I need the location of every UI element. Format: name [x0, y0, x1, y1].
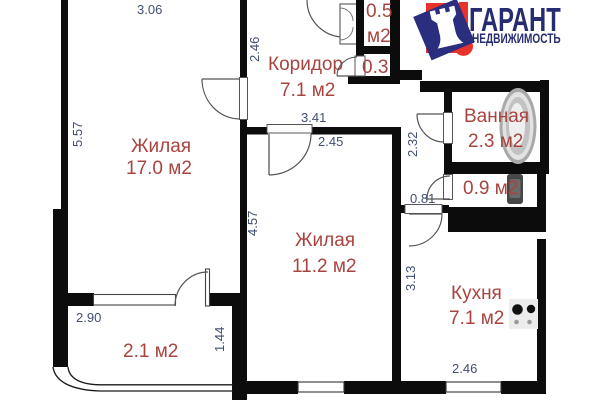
svg-text:0.5: 0.5 [366, 1, 392, 22]
svg-text:4.57: 4.57 [245, 211, 260, 236]
svg-text:7.1 м2: 7.1 м2 [280, 80, 335, 101]
svg-text:7.1 м2: 7.1 м2 [449, 308, 504, 329]
svg-text:2.32: 2.32 [405, 132, 420, 157]
svg-text:2.90: 2.90 [76, 310, 101, 325]
svg-text:2.46: 2.46 [247, 37, 262, 62]
svg-text:НЕДВИЖИМОСТЬ: НЕДВИЖИМОСТЬ [472, 30, 561, 46]
svg-text:0.9 м2: 0.9 м2 [463, 178, 518, 199]
svg-text:17.0 м2: 17.0 м2 [126, 158, 192, 179]
svg-text:2.45: 2.45 [318, 134, 343, 149]
svg-text:0.81: 0.81 [410, 191, 435, 206]
svg-text:0.3: 0.3 [362, 57, 388, 78]
svg-text:5.57: 5.57 [70, 122, 85, 147]
svg-text:3.13: 3.13 [403, 266, 418, 291]
svg-text:Жилая: Жилая [131, 136, 191, 157]
svg-text:3.06: 3.06 [137, 2, 162, 17]
svg-text:Кухня: Кухня [451, 283, 502, 304]
svg-text:м2: м2 [367, 26, 391, 47]
svg-text:1.44: 1.44 [212, 327, 227, 352]
svg-text:2.1 м2: 2.1 м2 [123, 341, 178, 362]
svg-text:Коридор: Коридор [268, 54, 343, 75]
svg-text:Жилая: Жилая [295, 230, 355, 251]
svg-text:Ванная: Ванная [464, 106, 529, 127]
svg-text:11.2 м2: 11.2 м2 [292, 256, 356, 277]
svg-text:2.3 м2: 2.3 м2 [468, 131, 523, 152]
svg-text:3.41: 3.41 [301, 110, 326, 125]
svg-text:2.46: 2.46 [452, 361, 477, 376]
